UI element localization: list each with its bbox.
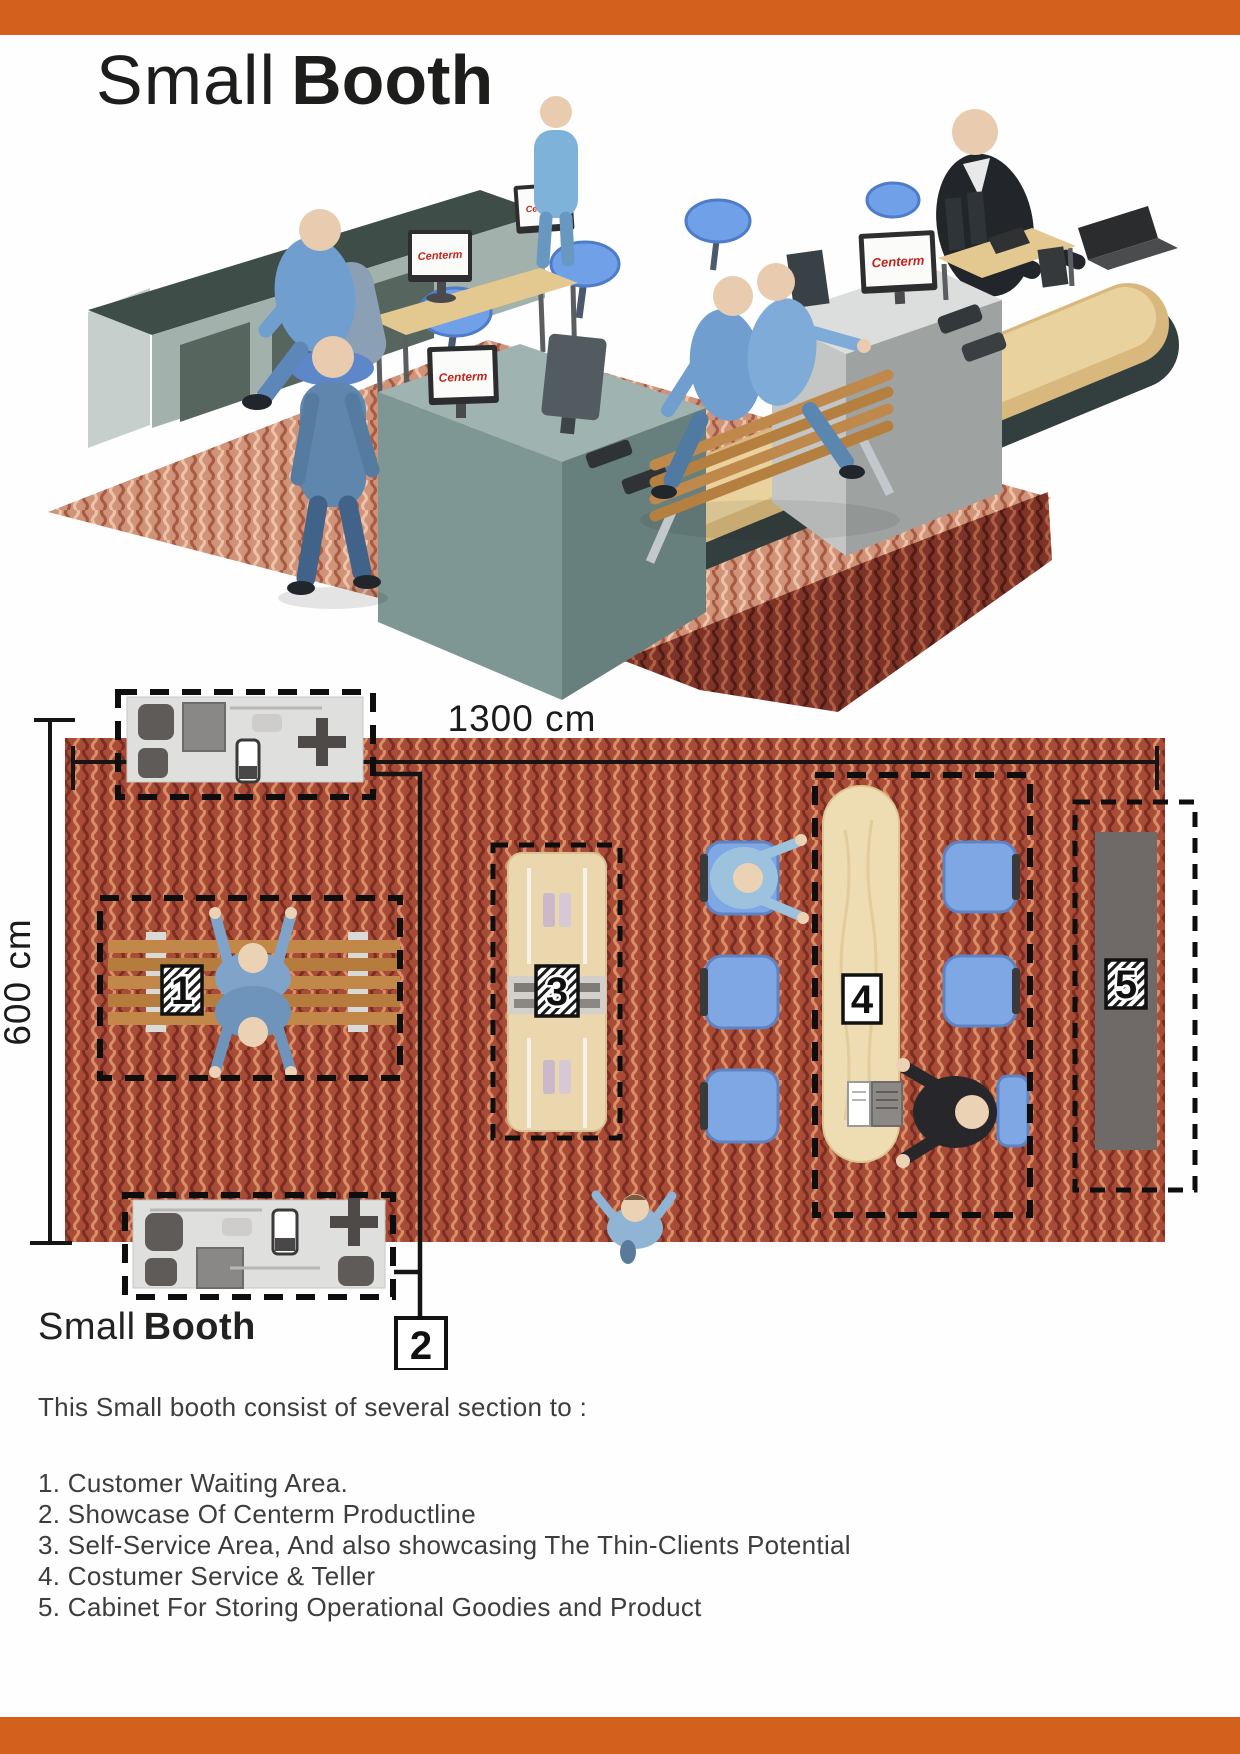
- floor-plan: 1300 cm 600 cm: [0, 610, 1240, 1370]
- label-3-text: 3: [546, 970, 568, 1014]
- description-item-3: 3. Self-Service Area, And also showcasin…: [38, 1530, 1198, 1561]
- description-item-1: 1. Customer Waiting Area.: [38, 1468, 1198, 1499]
- description-intro: This Small booth consist of several sect…: [38, 1392, 1198, 1423]
- plan-caption-bold: Booth: [144, 1306, 256, 1348]
- label-1: 1: [162, 966, 202, 1014]
- description-item-2: 2. Showcase Of Centerm Productline: [38, 1499, 1198, 1530]
- width-label: 1300 cm: [448, 698, 597, 739]
- label-3: 3: [536, 966, 578, 1016]
- bottom-accent-bar: [0, 1717, 1240, 1754]
- description-item-4: 4. Costumer Service & Teller: [38, 1561, 1198, 1592]
- label-2-text: 2: [410, 1324, 432, 1368]
- label-5: 5: [1106, 960, 1146, 1008]
- showcase-table-bottom: [125, 1195, 393, 1297]
- label-2: 2: [396, 1318, 446, 1370]
- label-4-text: 4: [851, 978, 874, 1022]
- plan-caption-light: Small: [38, 1306, 136, 1348]
- monitor-a-brand: Centerm: [417, 249, 462, 263]
- showcase-table-top: [118, 692, 373, 797]
- self-service-area: 3: [493, 845, 620, 1138]
- label-1-text: 1: [171, 969, 193, 1013]
- dimension-height: 600 cm: [0, 720, 75, 1243]
- label-4: 4: [843, 975, 881, 1023]
- teller-computer: [848, 1082, 902, 1126]
- monitor-d-brand: Centerm: [871, 253, 925, 271]
- standing-customer: [534, 96, 578, 262]
- top-accent-bar: [0, 0, 1240, 35]
- plan-walking-person: [596, 1194, 672, 1264]
- laptop: [1078, 206, 1178, 270]
- page: Small Booth: [0, 0, 1240, 1754]
- description-item-5: 5. Cabinet For Storing Operational Goodi…: [38, 1592, 1198, 1623]
- height-label: 600 cm: [0, 918, 38, 1045]
- monitor-c-brand: Centerm: [438, 369, 487, 385]
- label-5-text: 5: [1115, 963, 1137, 1007]
- plan-caption: Small Booth: [38, 1306, 256, 1349]
- description-block: This Small booth consist of several sect…: [38, 1392, 1198, 1623]
